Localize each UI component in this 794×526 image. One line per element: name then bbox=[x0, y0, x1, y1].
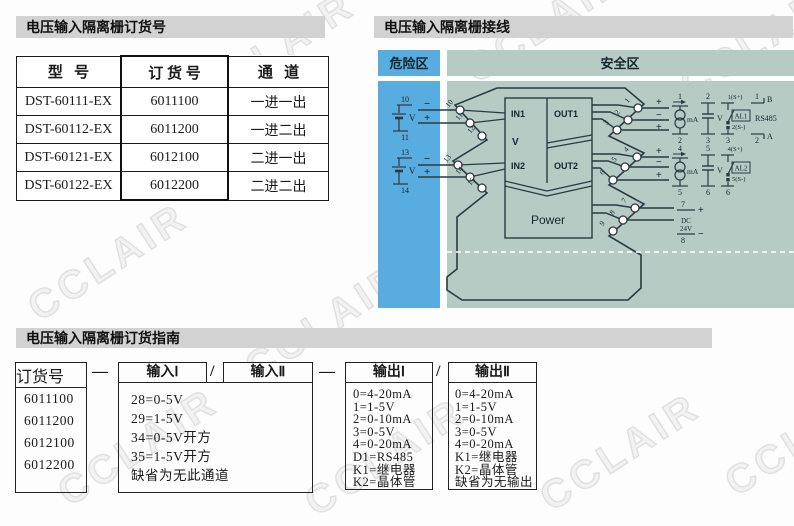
al1-contact-dot bbox=[726, 126, 729, 129]
out1-sign-plus: + bbox=[656, 97, 662, 108]
cell-channels: 二进二出 bbox=[228, 172, 329, 201]
dc-bottom-terminal: 8 bbox=[681, 236, 685, 245]
al1-top-terminal: 1(S+) bbox=[728, 94, 743, 101]
source1-v-label: V bbox=[409, 113, 416, 123]
input-option: 34=0-5V开方 bbox=[131, 428, 312, 447]
cell-channels: 二进一出 bbox=[228, 144, 329, 172]
volt2-bottom-terminal: 6 bbox=[706, 188, 710, 197]
cell-model: DST-60121-EX bbox=[17, 144, 122, 172]
cell-model: DST-60111-EX bbox=[17, 88, 122, 116]
rs485-b-label: B bbox=[767, 95, 772, 104]
source2-minus-sign: − bbox=[424, 153, 430, 165]
order-code-box-header: 订货号 bbox=[16, 363, 86, 388]
table-row: DST-60111-EX 6011100 一进一出 bbox=[17, 88, 329, 116]
rs485-name: RS485 bbox=[755, 114, 777, 123]
in2-label: IN2 bbox=[511, 161, 525, 171]
terminal-15 bbox=[478, 184, 486, 192]
input-option: 28=0-5V bbox=[131, 390, 312, 409]
al1-name: AL1 bbox=[735, 113, 748, 121]
cell-channels: 一进二出 bbox=[228, 116, 329, 144]
cell-model: DST-60122-EX bbox=[17, 172, 122, 201]
output2-options-box: 0=4-20mA1=1-5V2=0-10mA3=0-5V4=0-20mAK1=继… bbox=[448, 382, 537, 490]
cell-order-code: 6011100 bbox=[121, 88, 228, 116]
out2-sign-plus2: + bbox=[656, 170, 662, 181]
input-type-label: V bbox=[512, 137, 519, 148]
meter1-unit: mA bbox=[687, 115, 699, 124]
out1-sign-minus: − bbox=[656, 110, 662, 121]
connector-dash: — bbox=[92, 363, 108, 381]
output1-header: 输出Ⅰ bbox=[345, 362, 433, 383]
in1-label: IN1 bbox=[511, 109, 525, 119]
input1-header: 输入Ⅰ bbox=[118, 362, 207, 383]
al1-bottom-terminal: 3 bbox=[726, 136, 730, 145]
input-option: 29=1-5V bbox=[131, 409, 312, 428]
source2-v-label: V bbox=[409, 166, 416, 176]
volt1-unit: V bbox=[717, 114, 723, 123]
output2-option: 2=0-10mA bbox=[455, 413, 536, 426]
input-options-box: 28=0-5V29=1-5V34=0-5V开方35=1-5V开方缺省为无此通道 bbox=[118, 382, 313, 493]
watermark: CCLAIR bbox=[532, 384, 708, 520]
safe-zone-label: 安全区 bbox=[600, 56, 639, 71]
output1-options-box: 0=4-20mA1=1-5V2=0-10mA3=0-5V4=0-20mAD1=R… bbox=[345, 382, 433, 490]
order-code: 6012100 bbox=[16, 432, 86, 454]
wiring-diagram: 危险区 安全区 IN1 V IN2 OUT1 OUT2 Power 10 11 … bbox=[378, 47, 794, 310]
meter1-top-terminal: 1 bbox=[678, 92, 682, 101]
order-number-table: 型 号 订 货 号 通 道 DST-60111-EX 6011100 一进一出 … bbox=[16, 55, 329, 201]
datasheet-page: { "watermark": "CCLAIR", "colors": { "ha… bbox=[0, 0, 794, 507]
output1-option: K2=晶体管 bbox=[353, 476, 432, 489]
source1-terminal-top: 10 bbox=[401, 95, 409, 104]
output2-option: K1=继电器 bbox=[455, 451, 536, 464]
out1-sign-plus2: + bbox=[656, 122, 662, 133]
terminal-7 bbox=[631, 204, 639, 212]
separator-slash: / bbox=[210, 363, 214, 381]
al2-name: AL2 bbox=[735, 165, 748, 173]
dc-minus-sign: − bbox=[698, 229, 704, 240]
table-row: DST-60122-EX 6012200 二进二出 bbox=[17, 172, 329, 201]
order-code-box: 订货号 6011100601120060121006012200 bbox=[15, 362, 87, 493]
output1-option: D1=RS485 bbox=[353, 451, 432, 464]
volt1-top-terminal: 2 bbox=[706, 92, 710, 101]
source2-plus-sign: + bbox=[424, 166, 430, 178]
terminal-2 bbox=[624, 116, 632, 124]
table-row: DST-60121-EX 6012100 二进一出 bbox=[17, 144, 329, 172]
separator-slash: / bbox=[436, 363, 440, 381]
out1-label: OUT1 bbox=[554, 109, 578, 119]
order-code: 6011200 bbox=[16, 410, 86, 432]
order-code: 6011100 bbox=[16, 388, 86, 410]
terminal-12 bbox=[478, 132, 486, 140]
cell-order-code: 6012100 bbox=[121, 144, 228, 172]
watermark: CCLAIR bbox=[717, 369, 794, 505]
output2-option: 缺省为无输出 bbox=[455, 476, 536, 489]
input-option: 缺省为无此通道 bbox=[131, 466, 312, 485]
source1-minus-sign: − bbox=[424, 98, 430, 110]
dc-label: DC bbox=[681, 217, 691, 225]
terminal-5 bbox=[621, 163, 629, 171]
order-code: 6012200 bbox=[16, 454, 86, 476]
meter2-bottom-terminal: 5 bbox=[678, 188, 682, 197]
output2-option: 0=4-20mA bbox=[455, 388, 536, 401]
table-row: DST-60112-EX 6011200 一进二出 bbox=[17, 116, 329, 144]
rs485-bottom-terminal: 2 bbox=[755, 136, 759, 145]
col-header-channels: 通 道 bbox=[228, 56, 329, 88]
connector-dash: — bbox=[319, 363, 335, 381]
output1-option: 0=4-20mA bbox=[353, 388, 432, 401]
out2-label: OUT2 bbox=[554, 161, 578, 171]
al1-contact-dot bbox=[726, 121, 729, 124]
dc-top-terminal: 7 bbox=[681, 200, 685, 209]
dc-plus-sign: + bbox=[698, 205, 704, 216]
dc-voltage-label: 24V bbox=[680, 225, 692, 233]
section-title-order-numbers: 电压输入隔离栅订货号 bbox=[16, 16, 325, 38]
terminal-9 bbox=[609, 227, 617, 235]
source2-terminal-bottom: 14 bbox=[401, 186, 409, 195]
source2-terminal-top: 13 bbox=[401, 148, 409, 157]
power-label: Power bbox=[531, 213, 565, 227]
out2-sign-minus: − bbox=[656, 157, 662, 168]
terminal-8 bbox=[619, 216, 627, 224]
al2-top-terminal: 4(S+) bbox=[728, 146, 743, 153]
input-option: 35=1-5V开方 bbox=[131, 447, 312, 466]
cell-channels: 一进一出 bbox=[228, 88, 329, 116]
out2-sign-plus: + bbox=[656, 146, 662, 157]
al2-mid-terminal: 5(S-) bbox=[732, 176, 745, 183]
source1-plus-sign: + bbox=[424, 112, 430, 124]
rs485-top-terminal: 1 bbox=[755, 92, 759, 101]
col-header-model: 型 号 bbox=[17, 56, 122, 88]
section-title-wiring: 电压输入隔离栅接线 bbox=[374, 16, 793, 38]
al2-contact-dot bbox=[726, 178, 729, 181]
watermark: CCLAIR bbox=[20, 194, 196, 330]
al2-bottom-terminal: 6 bbox=[726, 188, 730, 197]
terminal-1 bbox=[634, 104, 642, 112]
meter2-unit: mA bbox=[687, 167, 699, 176]
source1-terminal-bottom: 11 bbox=[401, 133, 409, 142]
volt2-unit: V bbox=[717, 166, 723, 175]
cell-order-code: 6011200 bbox=[121, 116, 228, 144]
cell-order-code: 6012200 bbox=[121, 172, 228, 201]
meter2-top-terminal: 4 bbox=[678, 144, 682, 153]
al2-contact-dot bbox=[726, 173, 729, 176]
hazard-zone-label: 危险区 bbox=[389, 56, 428, 71]
col-header-order-code: 订 货 号 bbox=[121, 56, 228, 88]
section-title-ordering-guide: 电压输入隔离栅订货指南 bbox=[16, 328, 712, 348]
input2-header: 输入Ⅱ bbox=[223, 362, 313, 383]
rs485-a-label: A bbox=[767, 132, 773, 141]
volt2-top-terminal: 5 bbox=[706, 144, 710, 153]
terminal-6 bbox=[609, 176, 617, 184]
terminal-3 bbox=[613, 126, 621, 134]
cell-model: DST-60112-EX bbox=[17, 116, 122, 144]
terminal-4 bbox=[633, 153, 641, 161]
output2-header: 输出Ⅱ bbox=[448, 362, 537, 383]
output1-option: 2=0-10mA bbox=[353, 413, 432, 426]
al1-mid-terminal: 2(S-) bbox=[732, 124, 745, 131]
table-header-row: 型 号 订 货 号 通 道 bbox=[17, 56, 329, 88]
